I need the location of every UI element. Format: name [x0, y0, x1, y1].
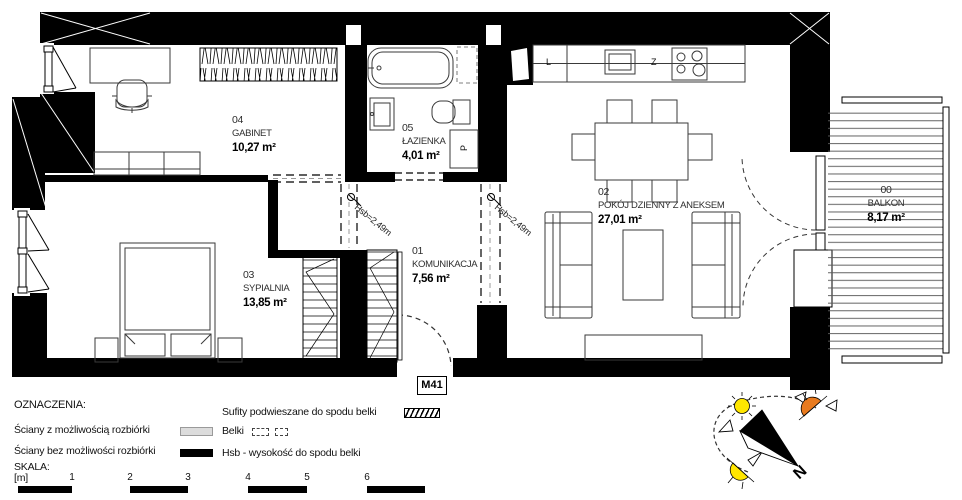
furniture-gabinet	[90, 48, 200, 175]
room-area: 10,27 m²	[232, 141, 276, 155]
scale-tick: 6	[364, 472, 370, 483]
scale-tick: 5	[304, 472, 310, 483]
room-label-gabinet: 04 GABINET 10,27 m²	[232, 113, 276, 155]
scale-tick: 2	[127, 472, 133, 483]
legend-wall-demolish-label: Ściany z możliwością rozbiórki	[14, 424, 150, 436]
north-needle	[740, 410, 798, 466]
fridge-letter: L	[546, 57, 551, 67]
room-label-komunikacja: 01 KOMUNIKACJA 7,56 m²	[412, 244, 477, 286]
room-number: 05	[402, 121, 446, 135]
sun-full	[728, 392, 756, 420]
room-label-lazienka: 05 ŁAZIENKA 4,01 m²	[402, 121, 446, 163]
floor-plan-page: 04 GABINET 10,27 m² 05 ŁAZIENKA 4,01 m² …	[0, 0, 962, 500]
legend-wall-demolish-swatch	[180, 427, 213, 436]
legend-wall-no-demolish-label: Ściany bez możliwości rozbiórki	[14, 445, 155, 457]
room-number: 00	[862, 183, 910, 197]
room-name: ŁAZIENKA	[402, 135, 446, 149]
washer-letter: P	[459, 145, 469, 151]
legend-hsb-label: Hsb - wysokość do spodu belki	[222, 447, 360, 459]
living-room-furniture	[545, 212, 740, 360]
legend-ceilings-swatch	[404, 408, 440, 418]
bedroom-furniture	[95, 243, 242, 362]
room-area: 8,17 m²	[862, 211, 910, 225]
room-name: GABINET	[232, 127, 276, 141]
room-name: KOMUNIKACJA	[412, 258, 477, 272]
unit-number-badge: M41	[417, 376, 447, 395]
legend-title: OZNACZENIA:	[14, 399, 86, 411]
bathroom-door	[395, 172, 443, 182]
balcony	[828, 97, 949, 363]
scale-bar	[18, 486, 425, 493]
wardrobe-gabinet	[200, 48, 337, 81]
scale-unit: [m]	[14, 472, 28, 484]
window-gabinet	[38, 43, 76, 94]
balcony-door	[742, 152, 832, 307]
room-name: POKÓJ DZIENNY Z ANEKSEM	[598, 199, 724, 213]
room-label-pokoj-dzienny: 02 POKÓJ DZIENNY Z ANEKSEM 27,01 m²	[598, 185, 724, 227]
legend-beams-label: Belki	[222, 425, 244, 437]
compass-rose	[714, 388, 837, 489]
room-number: 04	[232, 113, 276, 127]
room-label-balkon: 00 BALKON 8,17 m²	[862, 183, 910, 225]
wardrobe-corridor	[367, 250, 402, 362]
room-label-sypialnia: 03 SYPIALNIA 13,85 m²	[243, 268, 289, 310]
wardrobe-bedroom	[303, 257, 337, 362]
sink-letter: Z	[651, 57, 657, 67]
room-area: 13,85 m²	[243, 296, 289, 310]
hsb-markers	[348, 194, 502, 207]
entrance-door	[398, 315, 451, 366]
room-number: 02	[598, 185, 724, 199]
scale-tick: 4	[245, 472, 251, 483]
kitchen-counter	[533, 45, 745, 82]
legend-beam-swatch-2	[275, 428, 288, 436]
room-number: 03	[243, 268, 289, 282]
window-bedroom	[14, 208, 49, 296]
room-number: 01	[412, 244, 477, 258]
legend-wall-no-demolish-swatch	[180, 449, 213, 457]
room-name: BALKON	[862, 197, 910, 211]
scale-tick: 1	[69, 472, 75, 483]
room-area: 7,56 m²	[412, 272, 477, 286]
room-area: 4,01 m²	[402, 149, 446, 163]
legend-beam-swatch-1	[252, 428, 269, 436]
legend-ceilings-label: Sufity podwieszane do spodu belki	[222, 406, 377, 418]
scale-tick: 3	[185, 472, 191, 483]
room-name: SYPIALNIA	[243, 282, 289, 296]
room-area: 27,01 m²	[598, 213, 724, 227]
